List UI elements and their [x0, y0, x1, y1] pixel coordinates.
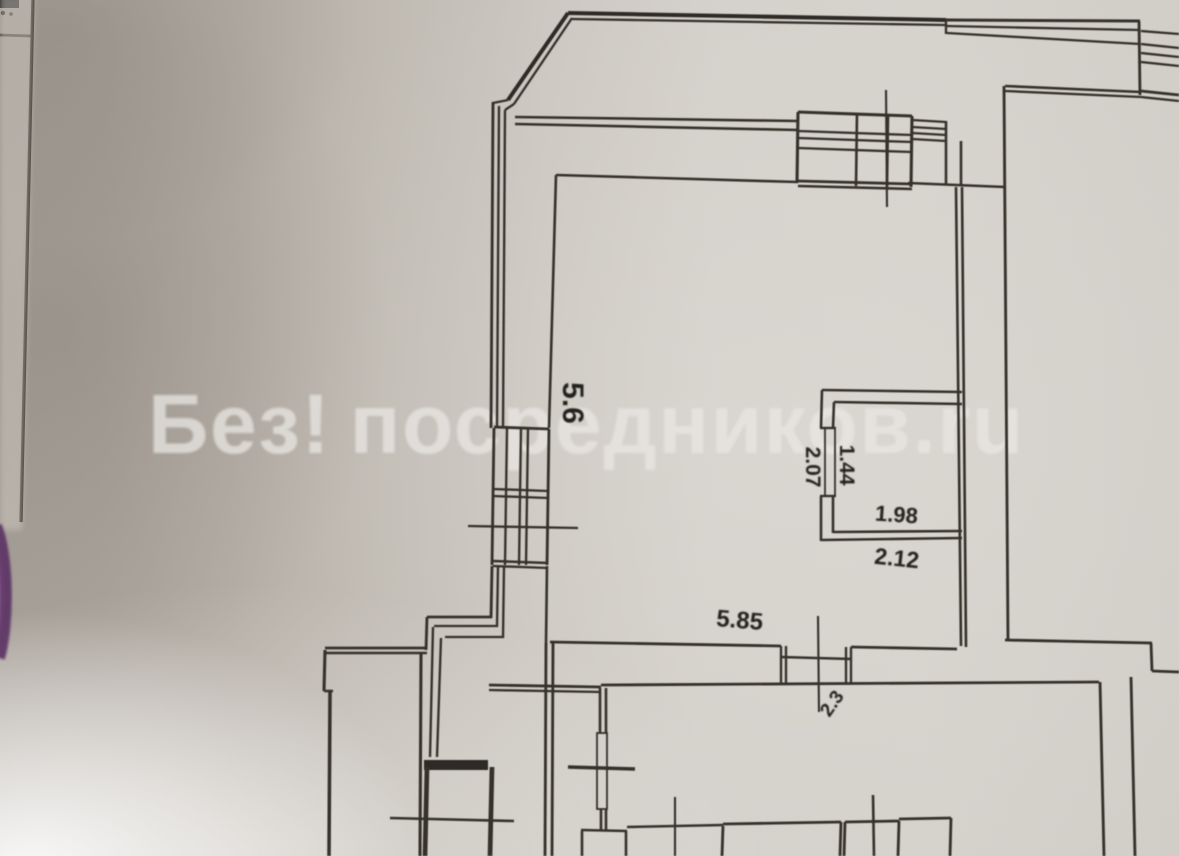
svg-text:2.12: 2.12: [873, 543, 920, 574]
svg-text:5.6: 5.6: [556, 382, 589, 424]
svg-text:1.44: 1.44: [835, 445, 858, 486]
svg-text:1.98: 1.98: [874, 501, 918, 529]
svg-text:2.07: 2.07: [801, 447, 824, 488]
svg-text:5.85: 5.85: [715, 605, 764, 636]
svg-text:2.3: 2.3: [816, 687, 848, 721]
